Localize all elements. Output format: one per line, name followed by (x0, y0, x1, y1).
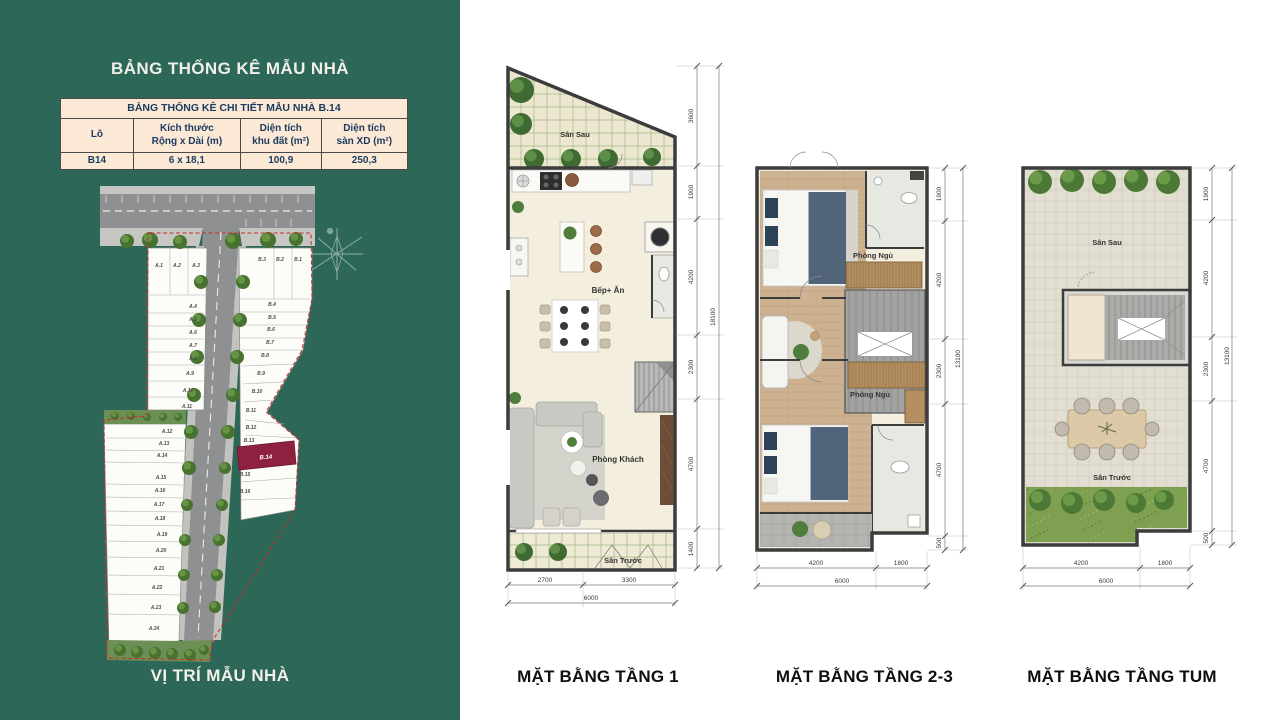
svg-text:A.18: A.18 (154, 516, 166, 522)
cell-lot: B14 (61, 153, 134, 170)
svg-text:4700: 4700 (1203, 458, 1210, 473)
svg-text:3300: 3300 (622, 577, 637, 584)
svg-text:A.12: A.12 (161, 429, 173, 435)
block-a-upper (148, 248, 207, 410)
sink-icon (874, 177, 882, 185)
svg-text:4700: 4700 (936, 462, 943, 477)
svg-text:A.3: A.3 (191, 263, 200, 269)
svg-text:A.14: A.14 (156, 453, 168, 459)
lot-b14-label: B.14 (259, 454, 273, 461)
spec-table: BẢNG THỐNG KÊ CHI TIẾT MẪU NHÀ B.14 Lô K… (60, 98, 408, 170)
toilet-icon (901, 193, 917, 204)
plant-icon (564, 227, 577, 240)
stool-icon (591, 244, 602, 255)
svg-text:A.17: A.17 (153, 502, 165, 508)
svg-text:B.7: B.7 (266, 340, 274, 346)
pouf-icon (593, 490, 609, 506)
svg-text:B.10: B.10 (252, 389, 263, 395)
svg-text:B.12: B.12 (246, 425, 257, 431)
stool-icon (591, 226, 602, 237)
room-label-bedroom2: Phòng Ngủ (850, 390, 890, 399)
armchair-icon (543, 508, 560, 526)
svg-text:A.15: A.15 (155, 475, 167, 481)
svg-text:4200: 4200 (936, 272, 943, 287)
svg-text:1800: 1800 (1158, 560, 1173, 567)
room-label-frontyard: Sân Trước (604, 556, 642, 565)
sidewalk-right (239, 228, 315, 246)
svg-text:2300: 2300 (1203, 361, 1210, 376)
svg-text:13100: 13100 (1224, 347, 1231, 365)
svg-text:1900: 1900 (936, 186, 943, 201)
svg-text:B.11: B.11 (246, 408, 256, 414)
room-label-tum-backyard: Sân Sau (1092, 238, 1122, 247)
plan3-caption: MẶT BẰNG TẦNG TUM (1002, 667, 1242, 687)
plan1-caption: MẶT BẰNG TẦNG 1 (492, 667, 704, 687)
plant-icon (509, 392, 521, 404)
svg-text:A.7: A.7 (188, 343, 197, 349)
bowl-icon (566, 174, 579, 187)
svg-text:A.19: A.19 (156, 532, 168, 538)
svg-text:B.8: B.8 (261, 353, 269, 359)
floor-plan-tum: Sân Sau Sân Trước 1900 4200 2300 4700 50… (1013, 148, 1245, 610)
svg-text:500: 500 (936, 537, 943, 548)
svg-text:500: 500 (1203, 532, 1210, 543)
closet-icon (905, 390, 925, 423)
washer-icon (651, 228, 669, 246)
cell-land-area: 100,9 (240, 153, 321, 170)
svg-text:A.6: A.6 (188, 330, 197, 336)
sofa-icon (583, 412, 602, 447)
svg-text:6000: 6000 (584, 595, 599, 602)
svg-text:B.13: B.13 (244, 438, 255, 444)
svg-text:2300: 2300 (936, 363, 943, 378)
svg-text:4200: 4200 (1074, 560, 1089, 567)
wardrobe-icon (848, 362, 925, 388)
svg-text:A.8: A.8 (188, 356, 197, 362)
svg-text:B.6: B.6 (267, 327, 275, 333)
svg-text:A.9: A.9 (185, 371, 194, 377)
svg-text:A.16: A.16 (154, 488, 166, 494)
svg-text:1400: 1400 (688, 541, 695, 556)
svg-text:A.4: A.4 (188, 304, 197, 310)
svg-text:B.16: B.16 (240, 489, 251, 495)
svg-text:B.2: B.2 (276, 257, 284, 263)
cell-floor-area: 250,3 (321, 153, 407, 170)
svg-text:1900: 1900 (1203, 186, 1210, 201)
col-land-area: Diện tíchkhu đất (m²) (240, 119, 321, 153)
armchair-icon (563, 508, 580, 526)
col-lot: Lô (61, 119, 134, 153)
svg-text:A.23: A.23 (150, 605, 162, 611)
svg-text:1800: 1800 (894, 560, 909, 567)
plan2-caption: MẶT BẰNG TẦNG 2-3 (752, 667, 977, 687)
col-floor-area: Diện tíchsàn XD (m²) (321, 119, 407, 153)
stool-icon (591, 262, 602, 273)
room-label-tum-frontyard: Sân Trước (1093, 473, 1131, 482)
room-label-kitchen: Bếp+ Ăn (592, 286, 625, 295)
block-a-lower (104, 424, 186, 647)
sofa-icon (509, 408, 534, 528)
cell-size: 6 x 18,1 (133, 153, 240, 170)
site-plan-map: B.14 A.1A.2A.3A.4A.5A.6A.7A.8A.9A.10A.11… (90, 183, 390, 675)
sink-cabinet (510, 238, 528, 276)
svg-text:A.21: A.21 (153, 566, 165, 572)
floor-plan-2-3: Phòng Ngủ Phòng Ngủ 1900 4200 2300 4700 … (748, 148, 976, 610)
svg-text:B.1: B.1 (294, 257, 302, 263)
pouf-icon (586, 474, 598, 486)
svg-text:6000: 6000 (1099, 578, 1114, 585)
plant-icon (793, 344, 809, 360)
dining-table-icon (552, 300, 598, 352)
plant-icon (792, 521, 808, 537)
svg-text:A.24: A.24 (148, 626, 160, 632)
svg-text:B.9: B.9 (257, 371, 265, 377)
planter-icon (813, 521, 831, 539)
svg-text:B.15: B.15 (240, 472, 251, 478)
svg-text:2300: 2300 (688, 359, 695, 374)
toilet-icon (659, 267, 669, 281)
svg-text:4200: 4200 (688, 269, 695, 284)
svg-text:4700: 4700 (688, 456, 695, 471)
svg-text:3600: 3600 (688, 108, 695, 123)
room-label-bedroom1: Phòng Ngủ (853, 251, 893, 260)
svg-text:B.4: B.4 (268, 302, 276, 308)
svg-text:2700: 2700 (538, 577, 553, 584)
tv-console-icon (660, 415, 674, 505)
svg-text:A.10: A.10 (182, 388, 194, 394)
stove-icon (540, 172, 562, 190)
spec-table-title: BẢNG THỐNG KÊ CHI TIẾT MẪU NHÀ B.14 (61, 99, 408, 119)
room-label-backyard: Sân Sau (560, 130, 590, 139)
sofa-icon (762, 316, 788, 388)
svg-text:1900: 1900 (688, 184, 695, 199)
col-size: Kích thướcRộng x Dài (m) (133, 119, 240, 153)
svg-text:6000: 6000 (835, 578, 850, 585)
floor-plan-1: Sân Sau Bếp+ Ăn Phòng Khách Sân Trước 36… (495, 40, 740, 620)
compass-icon (311, 228, 363, 280)
svg-text:A.13: A.13 (158, 441, 170, 447)
sidebar-title: BẢNG THỐNG KÊ MẪU NHÀ (0, 59, 460, 79)
svg-text:4200: 4200 (1203, 270, 1210, 285)
sidewalk-top (100, 186, 315, 194)
svg-text:B.5: B.5 (268, 315, 276, 321)
svg-text:A.11: A.11 (181, 404, 192, 410)
svg-text:A.1: A.1 (154, 263, 163, 269)
svg-text:B.3: B.3 (258, 257, 266, 263)
svg-text:4200: 4200 (809, 560, 824, 567)
svg-text:A.22: A.22 (151, 585, 163, 591)
bed-duvet (808, 192, 846, 284)
room-label-living: Phòng Khách (592, 455, 644, 464)
svg-text:A.5: A.5 (188, 317, 197, 323)
svg-text:A.2: A.2 (172, 263, 181, 269)
plan1-frontyard (510, 533, 673, 568)
skylight-panel (1068, 295, 1105, 360)
toilet-icon (891, 461, 909, 473)
svg-text:A.20: A.20 (155, 548, 167, 554)
plant-icon (512, 201, 524, 213)
svg-text:13100: 13100 (955, 350, 962, 368)
svg-text:18100: 18100 (710, 308, 717, 326)
